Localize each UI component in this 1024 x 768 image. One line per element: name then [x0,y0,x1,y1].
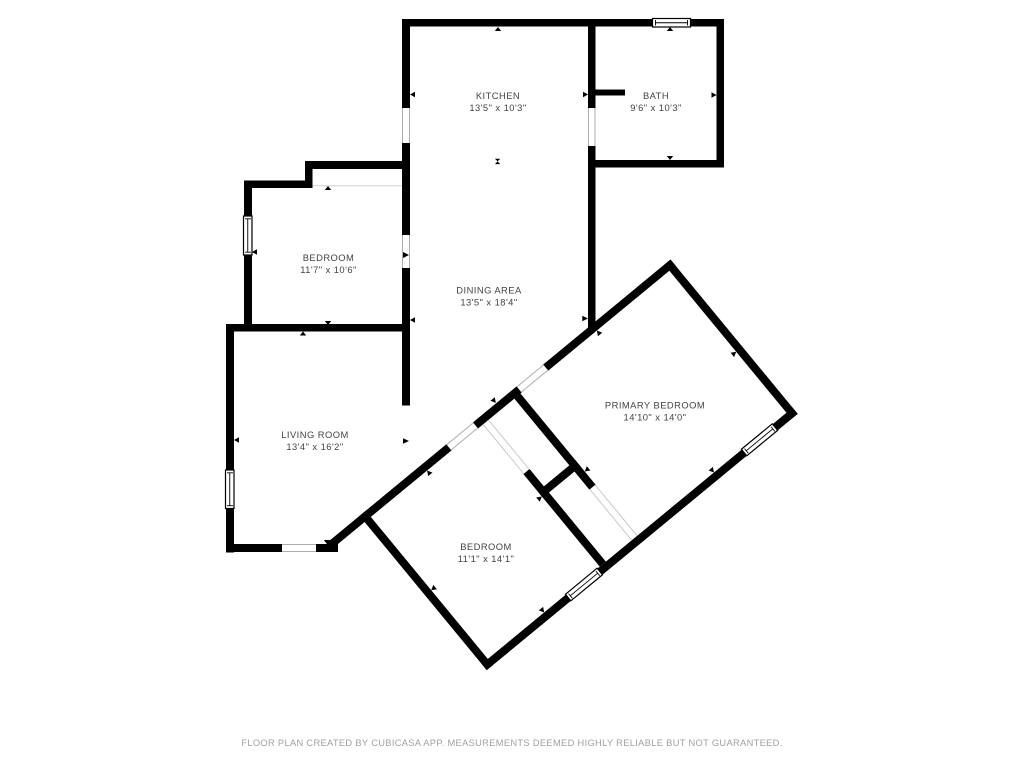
svg-text:KITCHEN: KITCHEN [476,90,520,101]
svg-text:PRIMARY BEDROOM: PRIMARY BEDROOM [605,400,705,411]
svg-text:9'6" x 10'3": 9'6" x 10'3" [630,102,682,113]
svg-text:11'1" x 14'1": 11'1" x 14'1" [458,553,515,564]
svg-text:BEDROOM: BEDROOM [303,252,355,263]
svg-text:13'4" x 16'2": 13'4" x 16'2" [286,441,343,452]
svg-text:14'10" x 14'0": 14'10" x 14'0" [624,412,687,423]
svg-text:BATH: BATH [643,90,669,101]
svg-text:LIVING ROOM: LIVING ROOM [281,429,348,440]
svg-text:13'5" x 10'3": 13'5" x 10'3" [469,102,526,113]
svg-text:DINING AREA: DINING AREA [456,285,522,296]
svg-text:13'5" x 18'4": 13'5" x 18'4" [460,296,517,307]
svg-text:BEDROOM: BEDROOM [460,541,512,552]
svg-text:FLOOR PLAN CREATED BY CUBICASA: FLOOR PLAN CREATED BY CUBICASA APP. MEAS… [241,738,782,748]
svg-text:11'7" x 10'6": 11'7" x 10'6" [300,264,357,275]
